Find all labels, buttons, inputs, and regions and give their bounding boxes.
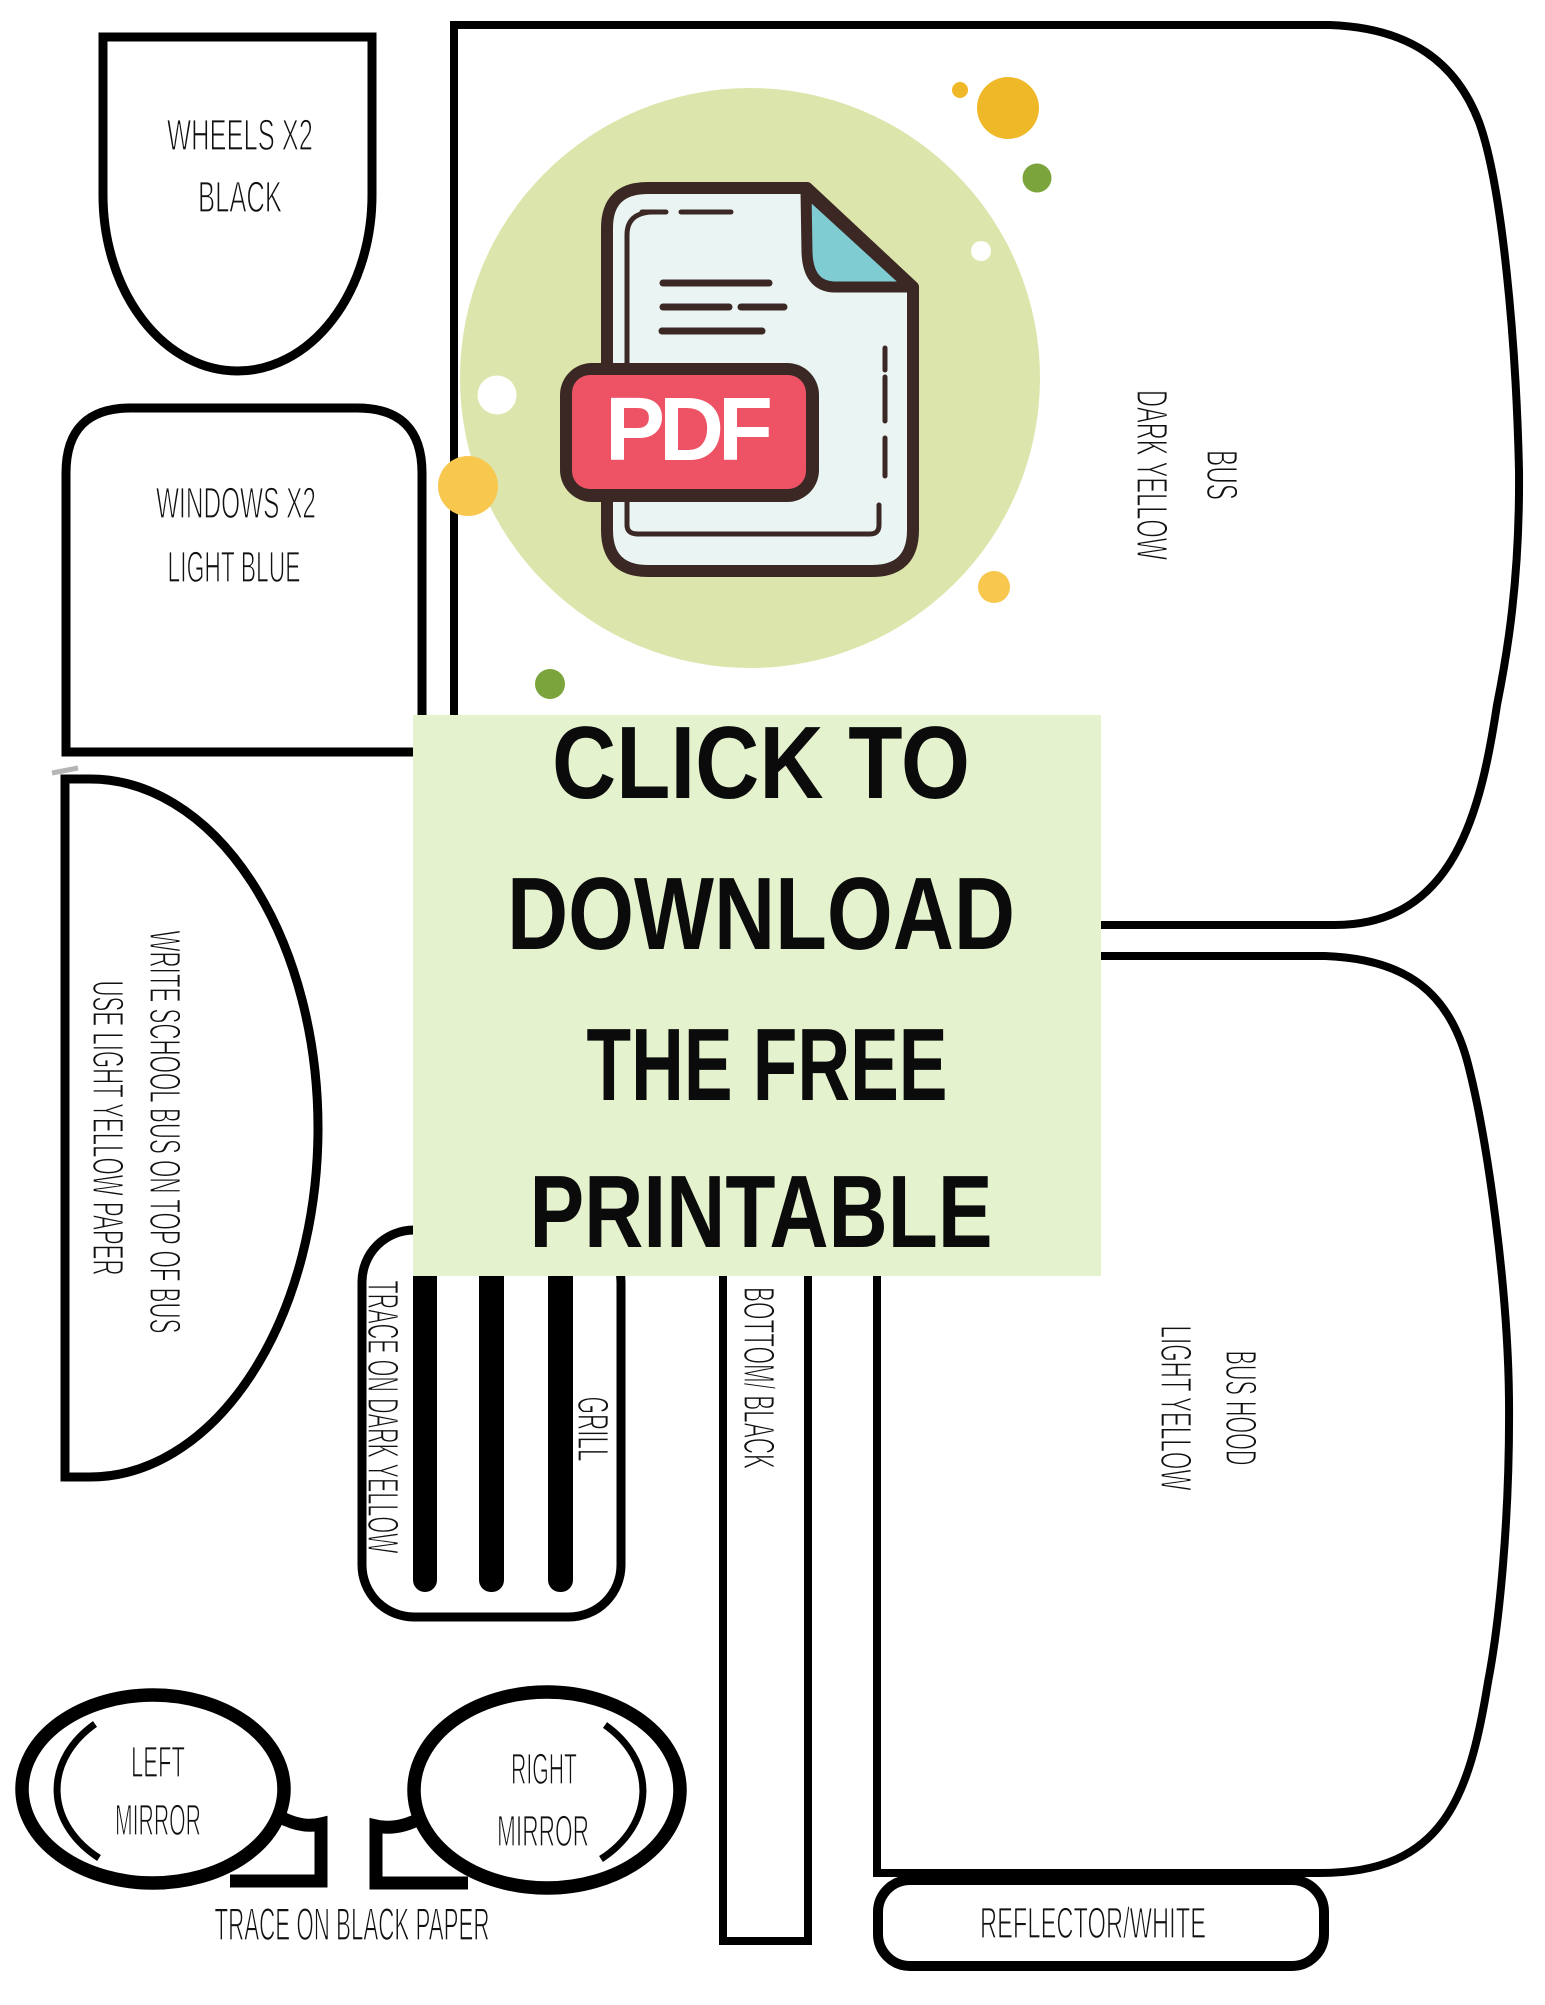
svg-text:DOWNLOAD: DOWNLOAD <box>507 856 1015 971</box>
svg-text:LIGHT BLUE: LIGHT BLUE <box>168 543 301 592</box>
svg-text:PRINTABLE: PRINTABLE <box>530 1154 993 1269</box>
svg-text:TRACE ON DARK YELLOW: TRACE ON DARK YELLOW <box>358 1281 407 1554</box>
svg-text:TRACE ON BLACK PAPER: TRACE ON BLACK PAPER <box>215 1898 490 1950</box>
svg-text:MIRROR: MIRROR <box>497 1807 589 1856</box>
svg-text:WHEELS X2: WHEELS X2 <box>167 111 313 160</box>
svg-text:BUS: BUS <box>1197 450 1246 500</box>
svg-text:REFLECTOR/WHITE: REFLECTOR/WHITE <box>980 1899 1206 1948</box>
svg-text:THE FREE: THE FREE <box>587 1007 948 1122</box>
svg-text:LIGHT YELLOW: LIGHT YELLOW <box>1151 1326 1200 1491</box>
svg-text:GRILL: GRILL <box>568 1397 617 1462</box>
svg-text:BOTTOM/ BLACK: BOTTOM/ BLACK <box>734 1287 783 1469</box>
svg-text:MIRROR: MIRROR <box>115 1796 201 1845</box>
svg-text:USE LIGHT YELLOW PAPER: USE LIGHT YELLOW PAPER <box>83 981 132 1276</box>
svg-text:LEFT: LEFT <box>131 1738 185 1787</box>
svg-text:RIGHT: RIGHT <box>511 1745 577 1794</box>
svg-text:PDF: PDF <box>605 380 773 480</box>
svg-text:BLACK: BLACK <box>198 173 282 222</box>
svg-text:WRITE SCHOOL BUS ON TOP OF BUS: WRITE SCHOOL BUS ON TOP OF BUS <box>140 931 189 1334</box>
svg-text:WINDOWS X2: WINDOWS X2 <box>156 479 316 528</box>
svg-text:BUS HOOD: BUS HOOD <box>1216 1351 1265 1466</box>
svg-text:DARK YELLOW: DARK YELLOW <box>1127 390 1176 560</box>
svg-text:CLICK TO: CLICK TO <box>552 705 970 820</box>
